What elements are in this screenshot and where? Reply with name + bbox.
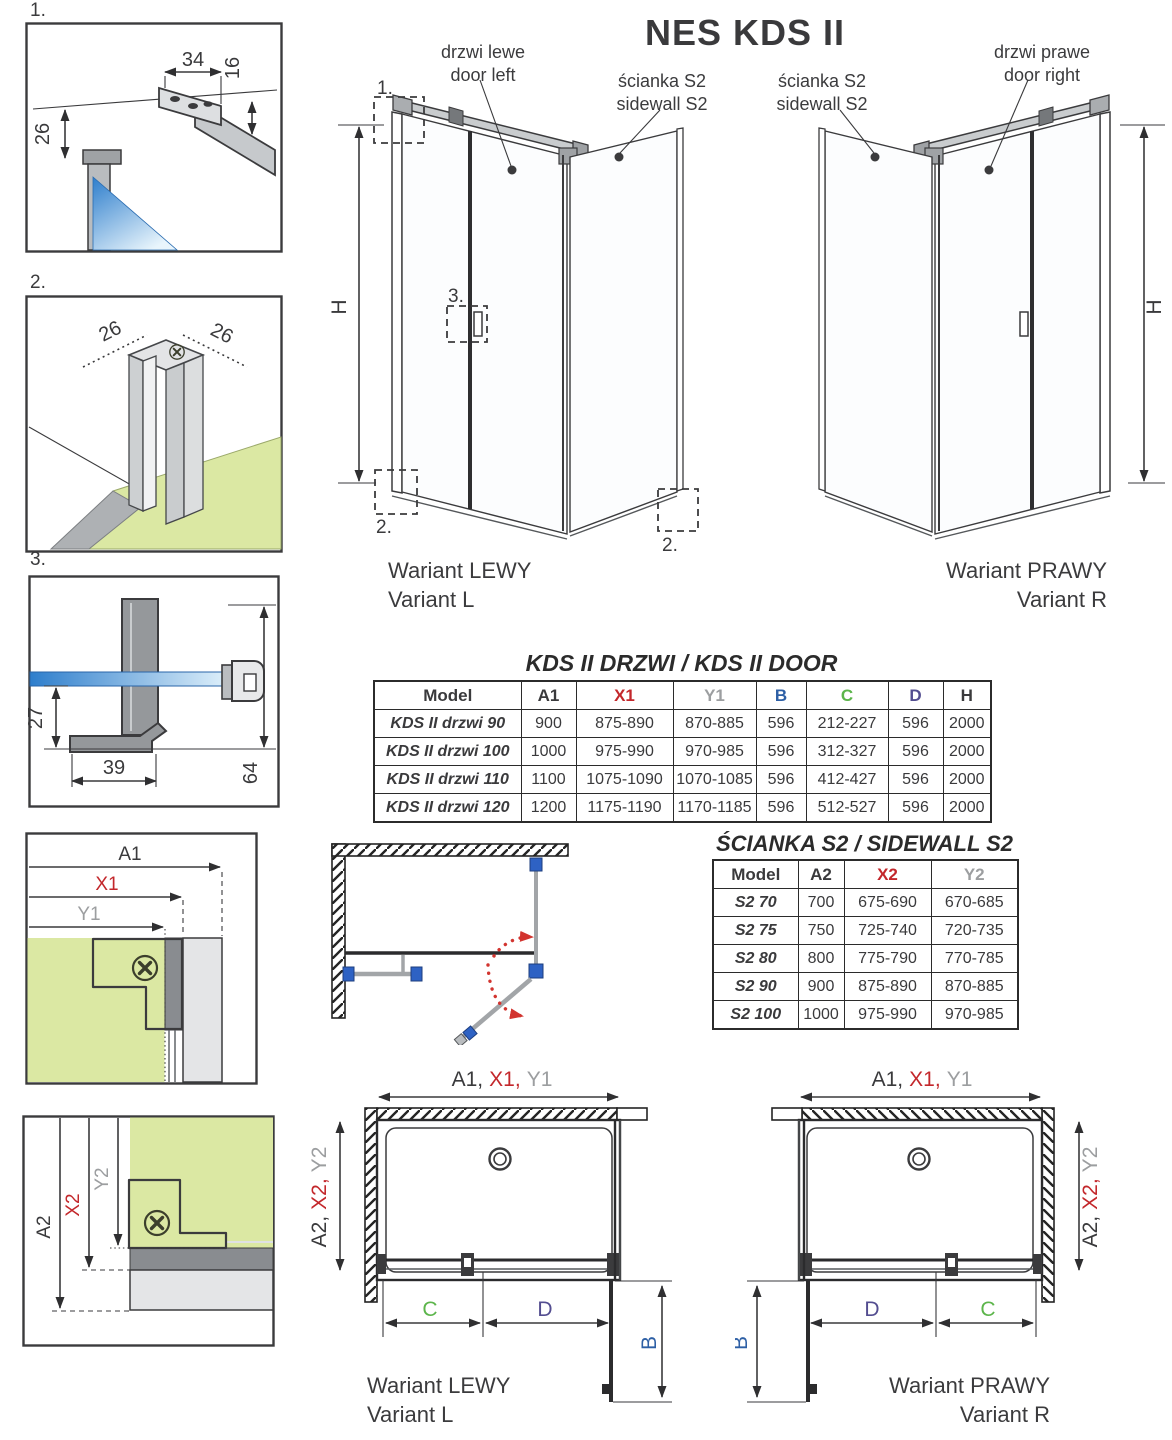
plan-detail-a2: A2 X2 Y2 [22, 1115, 275, 1347]
sidewall-table: Model A2 X2 Y2 S2 70700675-690670-685 S2… [712, 859, 1019, 1030]
bracket-foot [70, 723, 166, 752]
glass-profile-cap [83, 150, 121, 164]
detail-1-drawing: 34 16 26 [25, 22, 283, 253]
table-row: S2 70700675-690670-685 [713, 889, 1018, 917]
dim-d: D [864, 1298, 879, 1321]
bracket-vertical [122, 599, 158, 735]
callout-2a-label: 2. [376, 517, 392, 538]
dim-c: C [980, 1298, 995, 1321]
dim-y2: Y2 [92, 1167, 113, 1190]
table-row: S2 90900875-890870-885 [713, 973, 1018, 1001]
sidewall-table-title: ŚCIANKA S2 / SIDEWALL S2 [706, 831, 1023, 857]
door-swing-plan [310, 838, 705, 1045]
dim-h-right: H [1143, 299, 1166, 314]
table-row: KDS II drzwi 90900875-890870-885596212-2… [374, 710, 991, 738]
caption-3d-left: Wariant LEWY Variant L [388, 556, 531, 614]
profile-section [165, 938, 183, 1030]
callout-1-label: 1. [377, 78, 393, 99]
sidewall-table-header-row: Model A2 X2 Y2 [713, 860, 1018, 889]
callout-dot-door [985, 166, 994, 175]
dim-h-left: H [330, 299, 351, 314]
detail-2-drawing: 26 26 [25, 295, 283, 553]
table-row: KDS II drzwi 11011001075-10901070-108559… [374, 766, 991, 794]
dim-y1: Y1 [77, 904, 100, 925]
callout-dot-sidewall [871, 153, 880, 162]
dim-a2: A2 [34, 1215, 55, 1238]
profile-section [130, 1248, 273, 1270]
caption-plan-right: Wariant PRAWY Variant R [878, 1371, 1050, 1429]
shower-structure [392, 95, 683, 539]
dim-34: 34 [182, 49, 204, 71]
detail-3-drawing: 27 39 64 [28, 575, 280, 808]
dim-x1: X1 [95, 874, 118, 895]
dim-64: 64 [240, 762, 262, 784]
wall-left [332, 844, 345, 1018]
dim-group-a1: A1,X1,Y1 [872, 1068, 973, 1091]
wall-top [332, 844, 568, 856]
caption-3d-right: Wariant PRAWY Variant R [935, 556, 1107, 614]
dim-group-a2: A2,X2,Y2 [1079, 1147, 1102, 1248]
caption-plan-left: Wariant LEWY Variant L [367, 1371, 510, 1429]
door-table-header-row: Model A1 X1 Y1 B C D H [374, 681, 991, 710]
dim-d: D [537, 1298, 552, 1321]
dim-b: B [735, 1336, 752, 1350]
dim-26-left: 26 [95, 317, 125, 347]
detail-1-index: 1. [30, 0, 46, 22]
wall-section [183, 938, 222, 1082]
dim-group-a1: A1,X1,Y1 [452, 1068, 553, 1091]
drain-icon [490, 1149, 511, 1170]
plan-detail-a1: A1 X1 Y1 [25, 832, 258, 1085]
wall-section [130, 1270, 273, 1310]
table-row: S2 75750725-740720-735 [713, 917, 1018, 945]
dim-26-right: 26 [207, 319, 237, 349]
callout-dot-door [508, 166, 517, 175]
callout-2b-label: 2. [662, 535, 678, 556]
dim-39: 39 [103, 757, 125, 779]
dim-26: 26 [32, 123, 54, 145]
plan-structure [340, 1097, 672, 1402]
dim-b: B [638, 1336, 661, 1350]
callout-3-label: 3. [448, 286, 464, 307]
dim-a1: A1 [118, 844, 141, 865]
detail-2-index: 2. [30, 272, 46, 294]
table-row: S2 80800775-790770-785 [713, 945, 1018, 973]
dim-group-a2: A2,X2,Y2 [310, 1147, 331, 1248]
callout-dot-sidewall [615, 153, 624, 162]
dim-16: 16 [222, 57, 244, 79]
dim-27: 27 [28, 707, 47, 729]
floor [28, 938, 165, 1082]
glass-panel [93, 177, 177, 250]
table-row: KDS II drzwi 1001000975-990970-985596312… [374, 738, 991, 766]
table-row: KDS II drzwi 12012001175-11901170-118559… [374, 794, 991, 823]
glass-panel [30, 672, 226, 686]
door-table: Model A1 X1 Y1 B C D H KDS II drzwi 9090… [373, 680, 992, 823]
table-row: S2 1001000975-990970-985 [713, 1001, 1018, 1030]
dim-x2: X2 [63, 1193, 84, 1216]
dim-c: C [422, 1298, 437, 1321]
door-table-title: KDS II DRZWI / KDS II DOOR [373, 650, 990, 677]
